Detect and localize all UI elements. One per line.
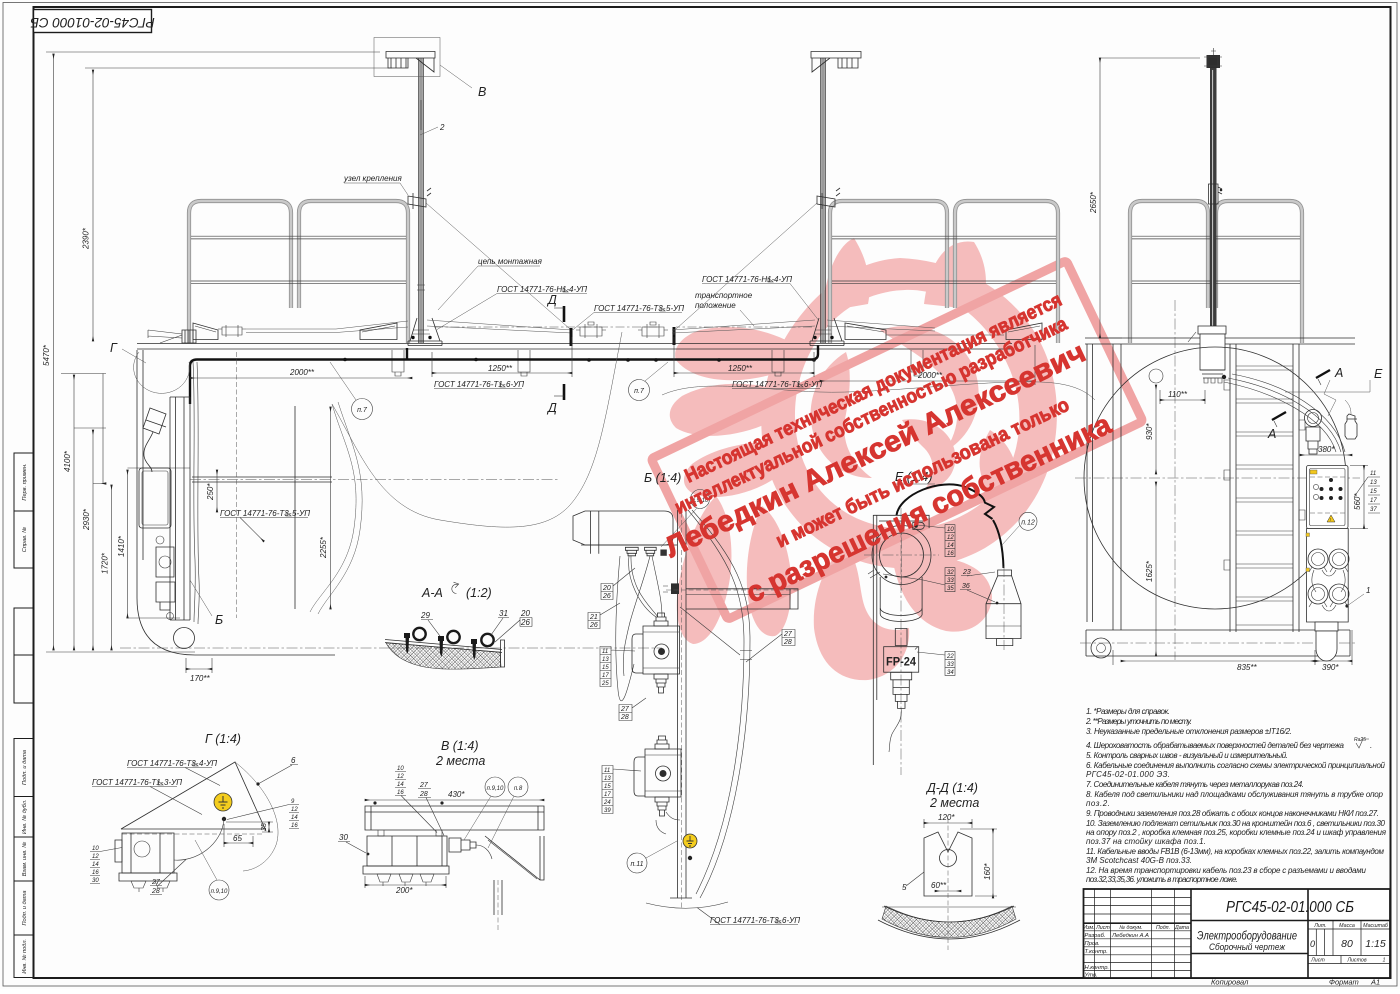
svg-text:2 места: 2 места <box>435 754 485 768</box>
svg-text:1250**: 1250** <box>488 364 513 373</box>
svg-text:33: 33 <box>947 662 954 668</box>
svg-text:17: 17 <box>1370 498 1377 504</box>
svg-text:28: 28 <box>620 714 629 721</box>
svg-text:1720*: 1720* <box>101 552 110 574</box>
svg-text:390*: 390* <box>1322 663 1339 672</box>
svg-text:12: 12 <box>291 807 298 813</box>
svg-text:27: 27 <box>620 706 630 713</box>
svg-text:А-А: А-А <box>421 586 443 600</box>
svg-text:Н.контр.: Н.контр. <box>1085 965 1110 971</box>
svg-text:4-УП: 4-УП <box>774 275 792 284</box>
svg-text:22: 22 <box>946 654 954 660</box>
svg-text:Д: Д <box>546 401 557 415</box>
svg-text:16: 16 <box>397 790 404 796</box>
svg-text:60**: 60** <box>931 881 947 890</box>
svg-text:Б (1:4): Б (1:4) <box>644 471 681 485</box>
svg-text:Инв. № дубл.: Инв. № дубл. <box>22 800 28 834</box>
svg-text:Лебедкин А.А: Лебедкин А.А <box>1111 933 1149 939</box>
svg-text:26: 26 <box>602 593 611 600</box>
svg-text:ГОСТ 14771-76-Т3-: ГОСТ 14771-76-Т3- <box>710 916 782 925</box>
svg-text:23: 23 <box>962 569 971 576</box>
svg-text:5-УП: 5-УП <box>666 304 684 313</box>
svg-text:Утв.: Утв. <box>1084 973 1098 979</box>
svg-text:26: 26 <box>520 618 530 627</box>
svg-text:12: 12 <box>92 854 99 860</box>
svg-text:5: 5 <box>902 883 907 892</box>
svg-text:1: 1 <box>1383 958 1386 964</box>
svg-text:6: 6 <box>291 756 296 765</box>
svg-text:20: 20 <box>602 585 611 592</box>
svg-text:ГОСТ 14771-76-Т3-: ГОСТ 14771-76-Т3- <box>220 509 292 518</box>
svg-text:1. *Размеры для справок.: 1. *Размеры для справок. <box>1086 707 1170 716</box>
svg-text:24: 24 <box>603 800 611 806</box>
svg-text:3М Scotchcast 40G-B поз.33.: 3М Scotchcast 40G-B поз.33. <box>1086 856 1192 865</box>
svg-text:27: 27 <box>151 879 161 886</box>
svg-text:33: 33 <box>947 578 954 584</box>
svg-text:37: 37 <box>1370 507 1377 513</box>
svg-text:РГС45-02-01.000 СБ: РГС45-02-01.000 СБ <box>1226 899 1354 916</box>
svg-text:ГОСТ 14771-76-Н1-: ГОСТ 14771-76-Н1- <box>702 275 775 284</box>
svg-text:14: 14 <box>947 543 954 549</box>
svg-text:16: 16 <box>291 823 298 829</box>
svg-text:15: 15 <box>602 665 609 671</box>
svg-text:Подп. и дата: Подп. и дата <box>22 890 28 925</box>
svg-text:Д: Д <box>546 293 557 307</box>
svg-text:10: 10 <box>397 766 404 772</box>
svg-text:на опору поз.2 , коробка клемн: на опору поз.2 , коробка клемная поз.25,… <box>1086 828 1387 837</box>
svg-text:13: 13 <box>602 657 609 663</box>
svg-text:27: 27 <box>419 782 429 789</box>
svg-text:0: 0 <box>1310 939 1315 949</box>
svg-text:11. Кабельные вводы FB1B (6-1: 11. Кабельные вводы FB1B (6-13мм), на ко… <box>1086 847 1385 856</box>
svg-text:п.7: п.7 <box>357 407 368 414</box>
svg-text:27: 27 <box>783 631 793 638</box>
svg-text:РГС45-02-01.000 ЭЗ.: РГС45-02-01.000 ЭЗ. <box>1086 770 1170 779</box>
svg-text:Электрооборудование: Электрооборудование <box>1197 929 1297 943</box>
svg-text:1:15: 1:15 <box>1365 938 1386 950</box>
svg-text:Лист: Лист <box>1310 958 1325 964</box>
svg-text:10: 10 <box>947 527 954 533</box>
svg-text:20: 20 <box>520 609 530 618</box>
svg-text:200*: 200* <box>395 886 413 895</box>
svg-text:11: 11 <box>604 768 610 774</box>
svg-text:3. Неуказанные предельные отк: 3. Неуказанные предельные отклонения раз… <box>1086 727 1292 736</box>
svg-text:4100*: 4100* <box>63 450 72 472</box>
svg-text:ГОСТ 14771-76-Т1-: ГОСТ 14771-76-Т1- <box>92 778 164 787</box>
svg-text:РГС45-02-01000 СБ: РГС45-02-01000 СБ <box>30 15 155 30</box>
svg-text:FP-24: FP-24 <box>886 655 916 669</box>
svg-text:поз.32,33,35,36. уложить в тра: поз.32,33,35,36. уложить в траспортное л… <box>1086 875 1238 884</box>
svg-text:2650*: 2650* <box>1089 191 1098 214</box>
svg-text:560*: 560* <box>1353 493 1362 510</box>
svg-text:13: 13 <box>1370 480 1377 486</box>
svg-text:110**: 110** <box>1168 390 1188 399</box>
svg-text:Б: Б <box>215 613 223 627</box>
svg-text:Г (1:4): Г (1:4) <box>205 732 241 746</box>
svg-text:ГОСТ 14771-76-Т3-: ГОСТ 14771-76-Т3- <box>127 759 199 768</box>
svg-text:1250**: 1250** <box>728 364 753 373</box>
svg-text:35: 35 <box>947 586 954 592</box>
svg-text:6. Кабельные соединения выпол: 6. Кабельные соединения выполнить соглас… <box>1086 761 1386 770</box>
svg-text:Перв. примен.: Перв. примен. <box>22 463 28 500</box>
svg-text:4. Шероховатость обрабатываем: 4. Шероховатость обрабатываемых поверхно… <box>1086 741 1345 750</box>
svg-text:16: 16 <box>947 551 954 557</box>
svg-text:835**: 835** <box>1237 663 1257 672</box>
svg-text:Лист: Лист <box>1095 925 1110 931</box>
svg-text:транспортное: транспортное <box>695 291 753 300</box>
svg-text:Разраб.: Разраб. <box>1085 933 1106 939</box>
svg-text:Сборочный чертеж: Сборочный чертеж <box>1209 942 1285 953</box>
svg-text:Справ. №: Справ. № <box>22 527 28 552</box>
svg-text:31: 31 <box>499 609 508 618</box>
svg-text:3-УП: 3-УП <box>164 778 182 787</box>
svg-text:6-УП: 6-УП <box>782 916 800 925</box>
svg-text:250*: 250* <box>206 483 215 501</box>
svg-text:1: 1 <box>1366 586 1370 595</box>
svg-text:35: 35 <box>261 823 268 831</box>
svg-text:14: 14 <box>397 782 404 788</box>
svg-text:39: 39 <box>604 808 611 814</box>
svg-text:2. **Размеры уточнить по мест: 2. **Размеры уточнить по месту. <box>1085 717 1192 726</box>
svg-text:2390*: 2390* <box>82 227 91 250</box>
svg-text:5-УП: 5-УП <box>292 509 310 518</box>
svg-text:А: А <box>1334 366 1343 380</box>
svg-text:14: 14 <box>92 862 99 868</box>
svg-text:.: . <box>1370 741 1372 750</box>
svg-text:1410*: 1410* <box>117 535 126 557</box>
svg-text:ГОСТ 14771-76-Т1-: ГОСТ 14771-76-Т1- <box>434 380 506 389</box>
svg-text:10: 10 <box>92 846 99 852</box>
svg-text:1625*: 1625* <box>1145 560 1154 582</box>
svg-text:ГОСТ 14771-76-Т1-: ГОСТ 14771-76-Т1- <box>732 380 804 389</box>
svg-text:14: 14 <box>291 815 298 821</box>
svg-text:!: ! <box>1330 517 1331 522</box>
svg-text:4-УП: 4-УП <box>199 759 217 768</box>
svg-text:п.9,10: п.9,10 <box>487 786 504 792</box>
svg-text:8. Кабеля под светильники над: 8. Кабеля под светильники над площадками… <box>1086 790 1384 799</box>
svg-text:2930*: 2930* <box>82 508 91 531</box>
svg-text:В: В <box>478 85 486 99</box>
svg-text:ГОСТ 14771-76-Н1-: ГОСТ 14771-76-Н1- <box>497 285 570 294</box>
svg-text:120*: 120* <box>938 813 955 822</box>
svg-text:25: 25 <box>601 681 609 687</box>
svg-text:380*: 380* <box>1318 445 1335 454</box>
svg-text:13: 13 <box>604 776 611 782</box>
svg-text:п.7: п.7 <box>634 388 645 395</box>
svg-text:29: 29 <box>420 611 430 620</box>
svg-text:п.9,10: п.9,10 <box>211 889 228 895</box>
svg-text:№ докум.: № докум. <box>1119 925 1142 931</box>
svg-text:32: 32 <box>947 570 954 576</box>
svg-text:Е: Е <box>1374 367 1383 381</box>
svg-text:Ra25: Ra25 <box>1354 737 1366 743</box>
svg-text:2000**: 2000** <box>289 368 315 377</box>
svg-text:17: 17 <box>604 792 611 798</box>
svg-text:Инв. № подл.: Инв. № подл. <box>22 939 28 974</box>
svg-text:Масса: Масса <box>1339 923 1355 929</box>
svg-text:28: 28 <box>783 639 792 646</box>
svg-text:положение: положение <box>695 301 736 310</box>
svg-text:Г: Г <box>110 341 118 355</box>
svg-text:930*: 930* <box>1145 423 1154 440</box>
svg-text:12: 12 <box>397 774 404 780</box>
svg-text:9. Проводники заземления поз.: 9. Проводники заземления поз.28 обжать с… <box>1086 809 1379 818</box>
svg-text:ГОСТ 14771-76-Т3-: ГОСТ 14771-76-Т3- <box>594 304 666 313</box>
svg-text:7. Соединительные кабеля тяну: 7. Соединительные кабеля тянуть через ме… <box>1086 780 1304 789</box>
svg-text:12: 12 <box>947 535 954 541</box>
svg-text:4-УП: 4-УП <box>569 285 587 294</box>
svg-text:Лит.: Лит. <box>1313 923 1326 929</box>
svg-text:узел крепления: узел крепления <box>343 174 402 183</box>
svg-text:цепь монтажная: цепь монтажная <box>478 257 543 266</box>
svg-text:170**: 170** <box>190 674 210 683</box>
svg-text:2: 2 <box>439 123 445 132</box>
svg-text:65: 65 <box>233 834 242 843</box>
svg-text:10. Заземлению подлежат сетил: 10. Заземлению подлежат сетильник поз.30… <box>1086 819 1386 828</box>
svg-text:Масштаб: Масштаб <box>1363 923 1389 929</box>
svg-text:Подп.: Подп. <box>1156 925 1170 931</box>
svg-text:Дата: Дата <box>1174 925 1189 931</box>
svg-text:34: 34 <box>947 670 954 676</box>
svg-text:5. Контроль сварных швов - ви: 5. Контроль сварных швов - визуальный и … <box>1086 751 1288 760</box>
svg-text:160*: 160* <box>983 863 992 880</box>
svg-text:80: 80 <box>1341 938 1353 950</box>
svg-text:2 места: 2 места <box>929 796 979 810</box>
svg-text:Пров.: Пров. <box>1085 941 1100 947</box>
svg-text:Листов: Листов <box>1346 958 1367 964</box>
svg-text:(1:2): (1:2) <box>466 586 492 600</box>
svg-text:В (1:4): В (1:4) <box>441 739 479 753</box>
svg-text:15: 15 <box>1370 489 1377 495</box>
svg-text:п.8: п.8 <box>514 786 523 792</box>
svg-text:21: 21 <box>589 614 598 621</box>
svg-text:2255*: 2255* <box>319 536 328 559</box>
svg-text:Т.контр.: Т.контр. <box>1085 949 1108 955</box>
svg-text:6-УП: 6-УП <box>506 380 524 389</box>
svg-text:п.12: п.12 <box>1021 519 1035 526</box>
svg-text:30: 30 <box>339 833 348 842</box>
svg-text:5470*: 5470* <box>42 344 51 366</box>
svg-text:28: 28 <box>151 888 160 895</box>
svg-text:16: 16 <box>92 870 99 876</box>
svg-text:Изм.: Изм. <box>1083 925 1094 931</box>
svg-text:26: 26 <box>589 622 598 629</box>
svg-text:поз.2.: поз.2. <box>1086 799 1110 808</box>
svg-text:6-УП: 6-УП <box>804 380 822 389</box>
svg-text:поз.37 на стойку шкафа поз.1.: поз.37 на стойку шкафа поз.1. <box>1086 837 1206 846</box>
svg-text:430*: 430* <box>448 790 465 799</box>
svg-text:15: 15 <box>604 784 611 790</box>
svg-text:Д-Д (1:4): Д-Д (1:4) <box>925 781 978 795</box>
svg-text:Взам. инв. №: Взам. инв. № <box>22 842 28 877</box>
svg-text:30: 30 <box>92 878 99 884</box>
svg-text:17: 17 <box>602 673 609 679</box>
svg-text:12. На время транспортировки: 12. На время транспортировки кабель поз.… <box>1086 866 1367 875</box>
svg-text:28: 28 <box>419 791 428 798</box>
svg-text:36: 36 <box>962 583 970 590</box>
svg-text:А: А <box>1267 427 1276 441</box>
svg-text:Подп. и дата: Подп. и дата <box>22 750 28 785</box>
svg-text:11: 11 <box>1370 471 1376 477</box>
svg-text:п.11: п.11 <box>630 861 643 868</box>
svg-text:11: 11 <box>602 649 608 655</box>
